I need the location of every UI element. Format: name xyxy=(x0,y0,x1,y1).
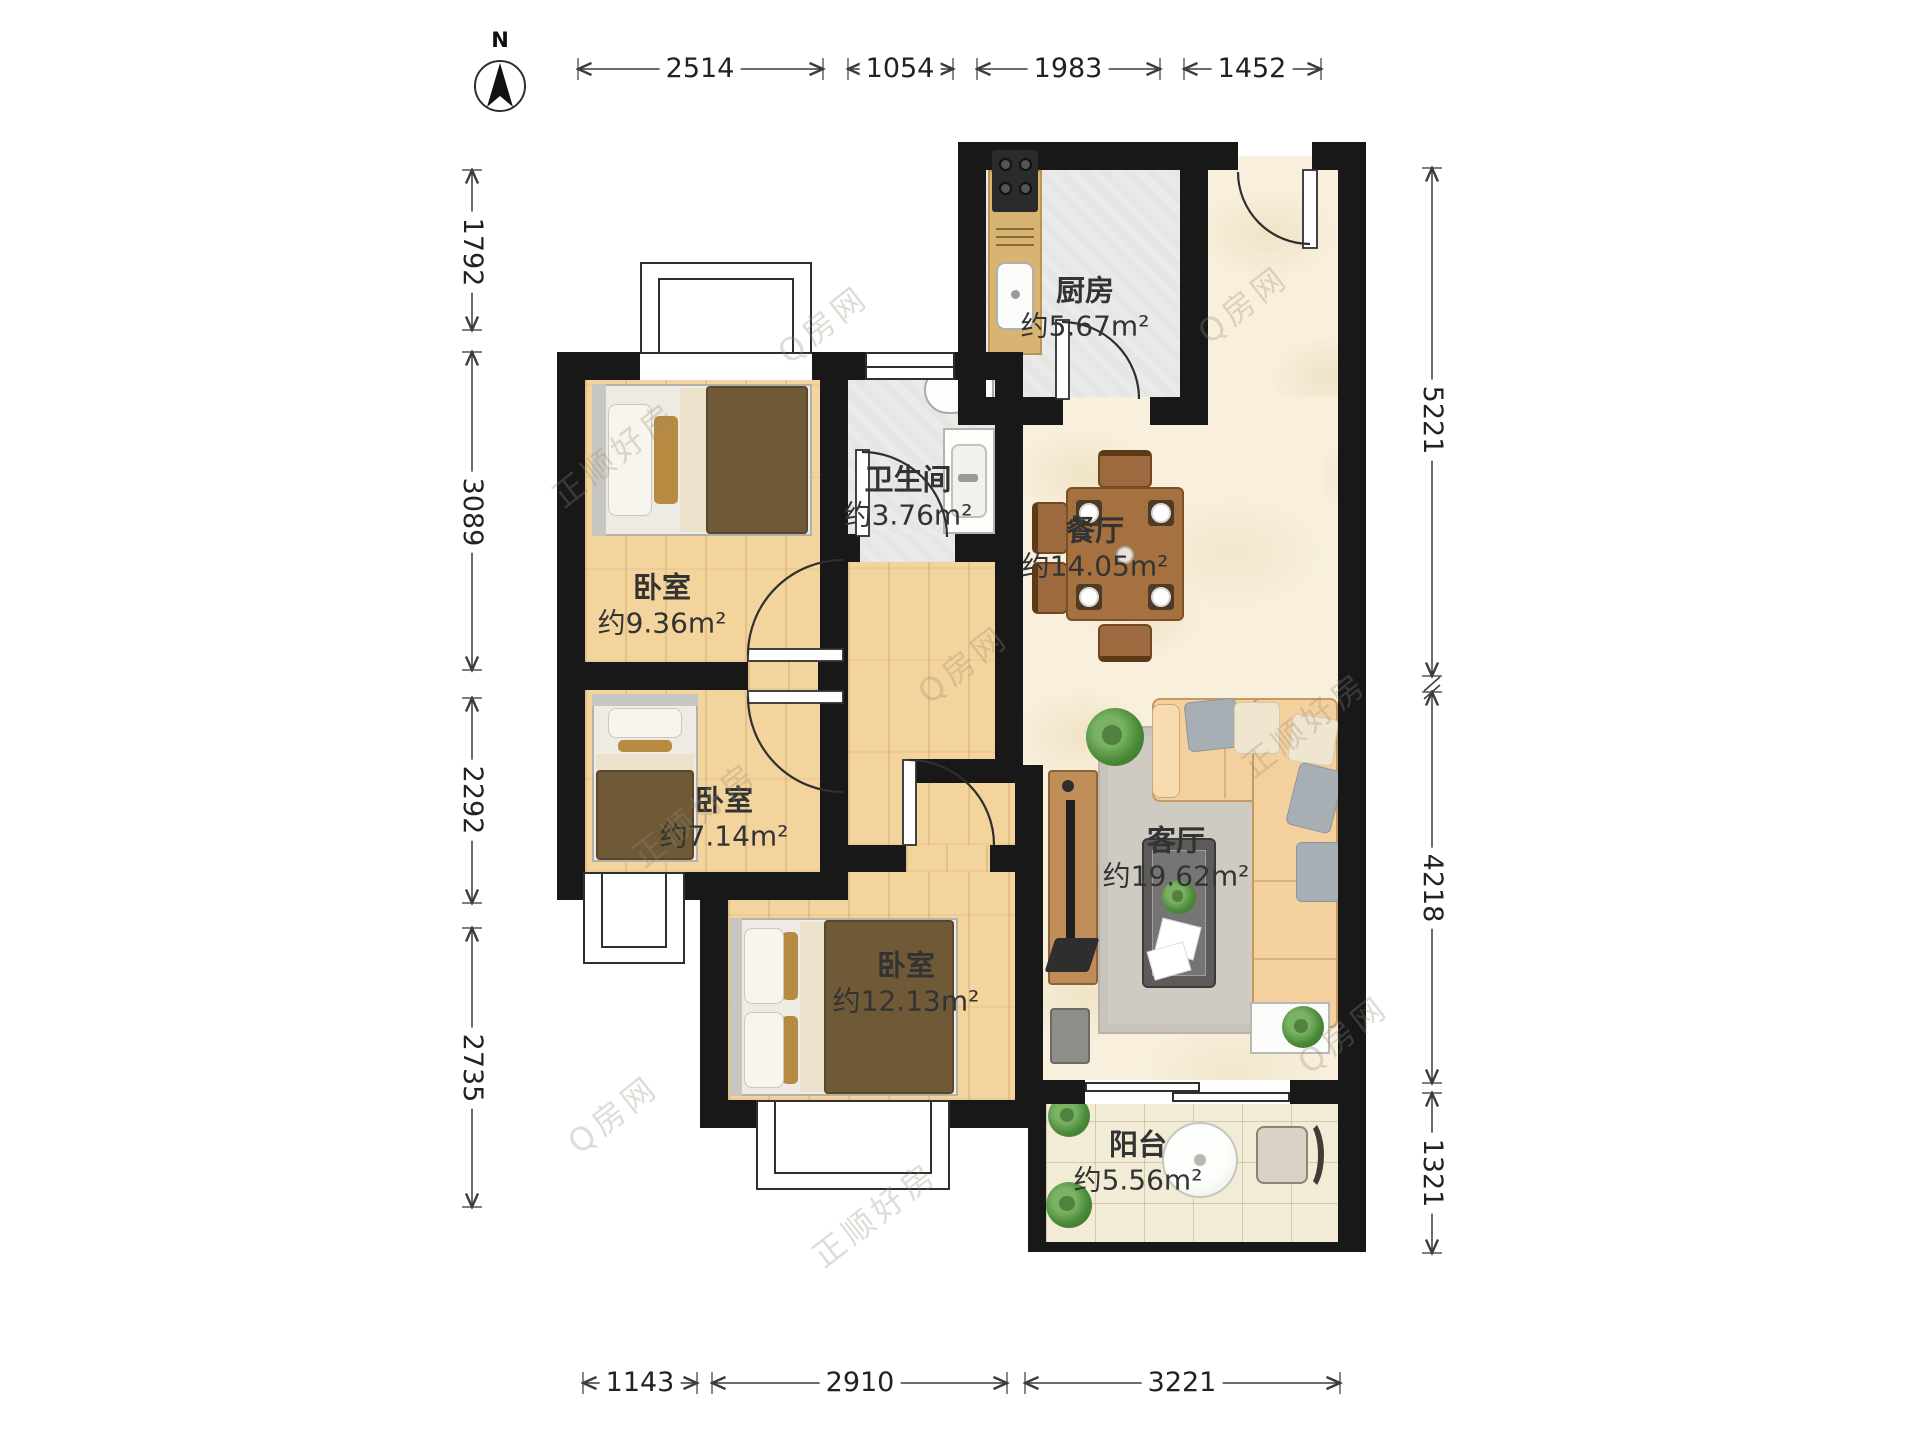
room-label-bathroom: 卫生间 约3.76m² xyxy=(844,461,973,532)
dim-bottom-1143: 1143 xyxy=(600,1368,681,1398)
room-label-bedroom2: 卧室 约7.14m² xyxy=(660,782,789,853)
floor-plan-page: N 厨房 约5.67m² 卫生间 约3.76m² 餐厅 约14.05m² 卧室 … xyxy=(0,0,1920,1440)
room-area: 约7.14m² xyxy=(660,819,789,854)
dimension-ticks xyxy=(462,58,1442,1394)
dim-left-1792: 1792 xyxy=(457,212,487,293)
dim-top-1054: 1054 xyxy=(860,54,941,84)
room-name: 卧室 xyxy=(598,569,727,605)
room-label-kitchen: 厨房 约5.67m² xyxy=(1021,272,1150,343)
plan-annotations xyxy=(0,0,1920,1440)
room-name: 厨房 xyxy=(1021,272,1150,308)
dim-left-3089: 3089 xyxy=(457,472,487,553)
bedroom3-door-leaf xyxy=(903,760,916,845)
room-area: 约19.62m² xyxy=(1103,859,1250,894)
bedroom1-door-arc xyxy=(748,560,843,655)
dim-top-2514: 2514 xyxy=(660,54,741,84)
entry-door-leaf xyxy=(1303,170,1317,248)
bedroom3-door-arc xyxy=(909,760,994,845)
dim-right-1321: 1321 xyxy=(1417,1133,1447,1214)
dim-left-2292: 2292 xyxy=(457,760,487,841)
dim-top-1983: 1983 xyxy=(1028,54,1109,84)
room-area: 约5.56m² xyxy=(1074,1163,1203,1198)
dim-bottom-2910: 2910 xyxy=(820,1368,901,1398)
dim-left-2735: 2735 xyxy=(457,1028,487,1109)
room-label-dining: 餐厅 约14.05m² xyxy=(1022,512,1169,583)
door-leaves xyxy=(748,170,1317,845)
compass-north-label: N xyxy=(491,28,509,52)
room-name: 客厅 xyxy=(1103,822,1250,858)
bedroom1-door-leaf xyxy=(748,649,843,661)
room-label-bedroom3: 卧室 约12.13m² xyxy=(833,947,980,1018)
room-area: 约14.05m² xyxy=(1022,549,1169,584)
dim-bottom-3221: 3221 xyxy=(1142,1368,1223,1398)
room-area: 约9.36m² xyxy=(598,606,727,641)
north-compass xyxy=(475,61,525,111)
room-label-living: 客厅 约19.62m² xyxy=(1103,822,1250,893)
room-area: 约3.76m² xyxy=(844,498,973,533)
dim-top-1452: 1452 xyxy=(1212,54,1293,84)
room-name: 餐厅 xyxy=(1022,512,1169,548)
dimension-lines xyxy=(472,69,1432,1383)
room-area: 约5.67m² xyxy=(1021,309,1150,344)
room-name: 阳台 xyxy=(1074,1126,1203,1162)
dim-right-4218: 4218 xyxy=(1417,848,1447,929)
entry-door-arc xyxy=(1238,172,1310,244)
room-label-bedroom1: 卧室 约9.36m² xyxy=(598,569,727,640)
bedroom2-door-leaf xyxy=(748,691,843,703)
room-label-balcony: 阳台 约5.56m² xyxy=(1074,1126,1203,1197)
room-name: 卫生间 xyxy=(844,461,973,497)
room-name: 卧室 xyxy=(833,947,980,983)
room-area: 约12.13m² xyxy=(833,984,980,1019)
bedroom2-door-arc xyxy=(748,697,843,792)
room-name: 卧室 xyxy=(660,782,789,818)
dim-right-5221: 5221 xyxy=(1417,380,1447,461)
